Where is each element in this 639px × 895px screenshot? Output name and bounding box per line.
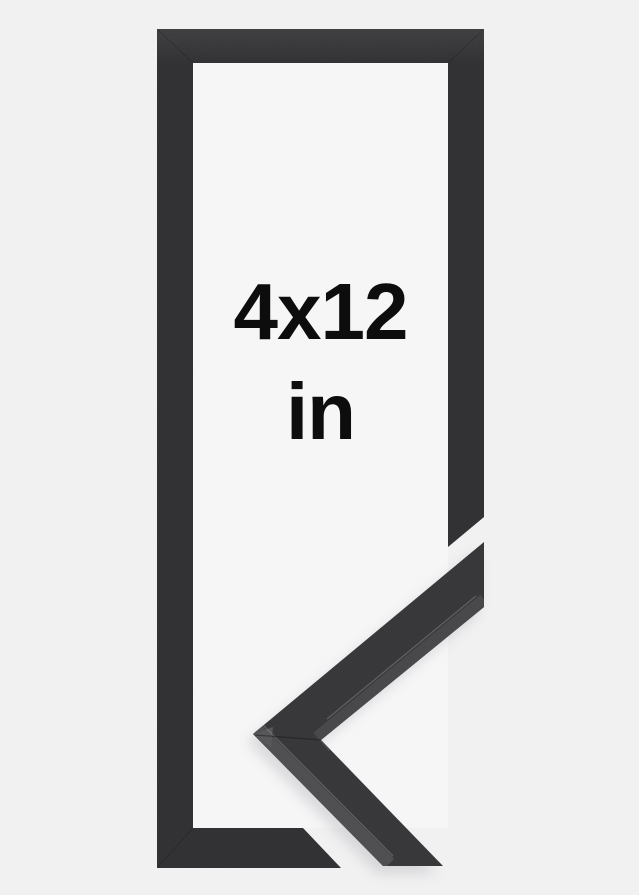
size-label: 4x12 — [193, 262, 448, 362]
size-label-block: 4x12 in — [193, 262, 448, 462]
unit-label: in — [193, 362, 448, 462]
product-image: 4x12 in — [0, 0, 639, 895]
